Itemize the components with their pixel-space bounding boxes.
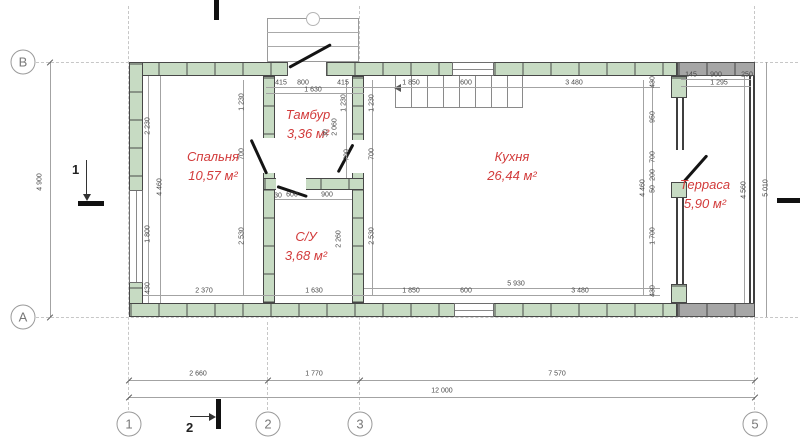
room-area: 26,44 м² (487, 167, 536, 186)
room-name: Спальня (187, 148, 239, 167)
dimension-label: 250 (741, 72, 753, 79)
floor-plan: 1 2 Спальня10,57 м²Тамбур3,36 м²С/У3,68 … (0, 0, 800, 441)
dimension-label: 2 060 (332, 118, 339, 136)
dimension-label: 2 530 (239, 227, 246, 245)
dimension-label: 700 (344, 149, 351, 161)
room-name: Кухня (487, 148, 536, 167)
wall-kitchen-terrace-cap-bottom (671, 284, 687, 303)
dimension-label: 600 (460, 80, 472, 87)
grid-line-A (36, 317, 798, 318)
dimension-label: 2 230 (145, 117, 152, 135)
dimension-label: 430 (650, 76, 657, 88)
window-bottom (454, 303, 494, 317)
dimension-label: 2 660 (189, 371, 207, 378)
dimension-label: 145 (685, 72, 697, 79)
dim-line (143, 295, 660, 296)
grid-marker-5: 5 (743, 412, 768, 437)
section-2-label: 2 (186, 420, 193, 435)
porch-step-line (267, 46, 359, 47)
dimension-label: 1 700 (650, 227, 657, 245)
room-label-bathroom: С/У3,68 м² (285, 228, 327, 266)
dimension-label: 1 230 (369, 94, 376, 112)
dimension-label: 5 010 (763, 179, 770, 197)
porch-circle-marker (306, 12, 320, 26)
room-area: 3,68 м² (285, 247, 327, 266)
dimension-label: 5 930 (507, 281, 525, 288)
room-label-terrace: Терраса5,90 м² (680, 176, 730, 214)
dimension-label: 1 230 (239, 93, 246, 111)
dimension-label: 1 230 (341, 94, 348, 112)
section-1-bar (78, 201, 104, 206)
dimension-label: 1 770 (305, 371, 323, 378)
dimension-label: 700 (369, 148, 376, 160)
dimension-label: 415 (275, 80, 287, 87)
dimension-label: 200 (650, 169, 657, 181)
dimension-label: 900 (321, 192, 333, 199)
dimension-label: 900 (710, 72, 722, 79)
dimension-label: 4 560 (741, 181, 748, 199)
dim-line-axis-total (129, 397, 755, 398)
dimension-label: 2 260 (336, 230, 343, 248)
dimension-label: 600 (286, 192, 298, 199)
dimension-label: 700 (239, 148, 246, 160)
dim-line (148, 76, 149, 303)
grid-marker-В: В (11, 50, 36, 75)
dimension-label: 430 (650, 285, 657, 297)
dim-line (243, 80, 244, 295)
room-area: 10,57 м² (187, 167, 239, 186)
terrace-railing-right (749, 76, 755, 303)
dimension-label: 1 850 (402, 288, 420, 295)
dimension-label: 600 (460, 288, 472, 295)
dimension-label: 1 295 (710, 80, 728, 87)
grid-marker-2: 2 (256, 412, 281, 437)
dim-line (364, 87, 660, 88)
wall-bottom (129, 303, 677, 317)
porch-step-line (267, 32, 359, 33)
window-top (452, 62, 494, 76)
section-1-arrow (83, 194, 91, 201)
room-name: Тамбур (286, 106, 331, 125)
dimension-label: 30 (323, 129, 330, 137)
grid-marker-1: 1 (117, 412, 142, 437)
terrace-wall-bottom (677, 303, 755, 317)
dimension-label: 3 480 (571, 288, 589, 295)
dimension-label: 415 (337, 80, 349, 87)
dimension-label: 2 370 (195, 288, 213, 295)
room-area: 5,90 м² (680, 195, 730, 214)
dimension-label: 700 (650, 151, 657, 163)
dimension-label: 430 (145, 282, 152, 294)
wall-top (129, 62, 677, 76)
section-2-bar-top (214, 0, 219, 20)
grid-marker-А: А (11, 305, 36, 330)
dimension-label: 30 (274, 193, 282, 200)
room-label-vestibule: Тамбур3,36 м² (286, 106, 331, 144)
dimension-label: 1 850 (402, 80, 420, 87)
room-name: С/У (285, 228, 327, 247)
dimension-label: 800 (297, 80, 309, 87)
dimension-label: 4 460 (157, 178, 164, 196)
dim-tick (752, 394, 758, 400)
dim-line (372, 80, 373, 295)
dim-tick (752, 377, 758, 383)
dimension-label: 3 480 (565, 80, 583, 87)
staircase-arrow-head (394, 84, 401, 92)
dimension-label: 4 460 (640, 179, 647, 197)
dimension-label: 1 800 (145, 225, 152, 243)
section-2-bar (216, 399, 221, 429)
dimension-label: 4 900 (37, 173, 44, 191)
dim-line-axis-spans (129, 380, 755, 381)
grid-marker-3: 3 (348, 412, 373, 437)
dim-line (50, 62, 51, 317)
dimension-label: 1 630 (305, 288, 323, 295)
section-2-arrow (209, 413, 216, 421)
section-1-line (86, 160, 87, 196)
dimension-label: 950 (650, 111, 657, 123)
room-label-kitchen: Кухня26,44 м² (487, 148, 536, 186)
window-left (129, 190, 143, 283)
room-label-bedroom: Спальня10,57 м² (187, 148, 239, 186)
section-1-bar-right (777, 198, 800, 203)
dimension-label: 2 530 (369, 227, 376, 245)
room-name: Терраса (680, 176, 730, 195)
dimension-label: 7 570 (548, 371, 566, 378)
dim-line (275, 199, 352, 200)
dimension-label: 12 000 (431, 388, 452, 395)
dimension-label: 50 (650, 185, 657, 193)
section-1-label: 1 (72, 162, 79, 177)
dimension-label: 1 630 (304, 87, 322, 94)
